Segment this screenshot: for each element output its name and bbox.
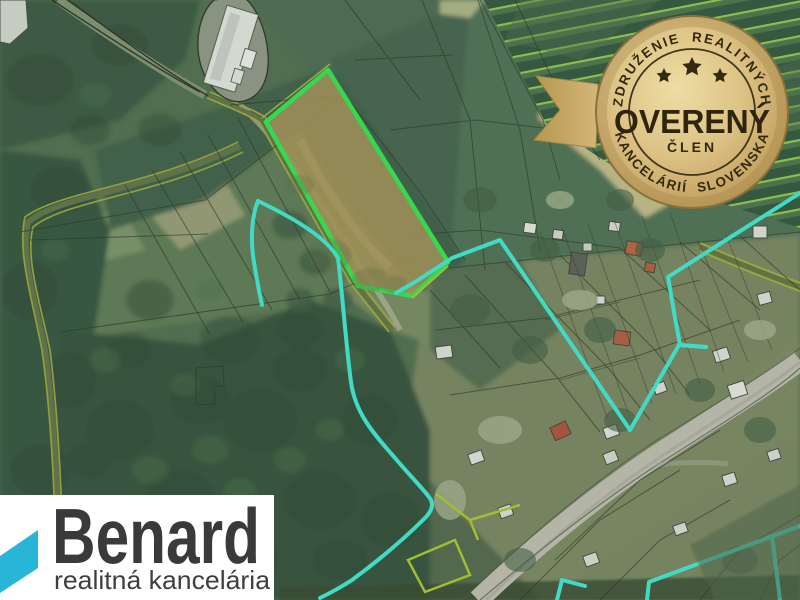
svg-text:OVERENÝ: OVERENÝ (614, 103, 770, 140)
svg-text:ČLEN: ČLEN (667, 138, 717, 155)
svg-text:realitná kancelária: realitná kancelária (54, 565, 271, 595)
